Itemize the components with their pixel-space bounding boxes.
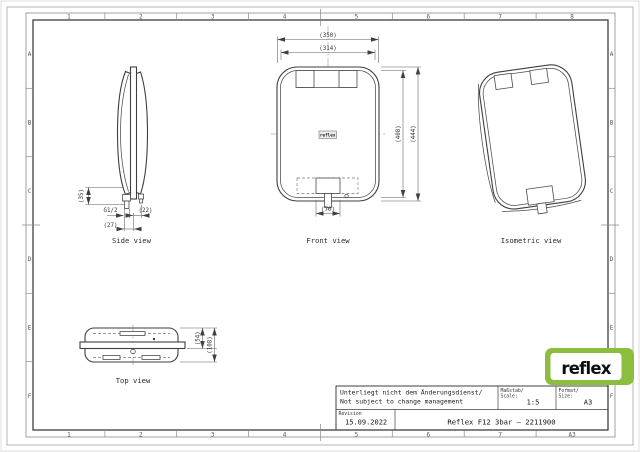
top-slot-lower-right xyxy=(142,356,160,360)
top-valve-dot xyxy=(153,338,155,340)
ruler-top-5: 5 xyxy=(355,14,359,21)
side-view-label: Side view xyxy=(112,236,152,245)
revision-label: Revision xyxy=(339,411,362,417)
ruler-bottom-3: 3 xyxy=(211,432,215,439)
isometric-view-label: Isometric view xyxy=(501,236,562,245)
title-block: Unterliegt nicht dem Änderungsdienst/ No… xyxy=(336,386,608,430)
ruler-left-a: A xyxy=(28,51,32,58)
ruler-bottom-4: 4 xyxy=(283,432,287,439)
iso-bracket-right xyxy=(530,68,549,84)
dim-408: (408) xyxy=(396,125,402,142)
iso-bottom-bracket xyxy=(526,186,554,205)
iso-bracket-left xyxy=(494,73,513,89)
ruler-labels-left: A B C D E F xyxy=(28,51,32,400)
dim-54: (54) xyxy=(196,331,202,345)
ruler-labels-right: A B C D E F xyxy=(610,51,614,400)
dim-350: (350) xyxy=(319,33,336,39)
dim-70: (70) xyxy=(321,207,335,213)
front-bracket-left xyxy=(296,71,314,88)
top-view-label: Top view xyxy=(116,376,151,385)
side-shell-left xyxy=(118,72,131,195)
iso-connection-pipe xyxy=(537,203,547,214)
dim-35: (35) xyxy=(79,189,85,203)
ruler-left-e: E xyxy=(28,325,32,332)
ruler-bottom-6: 6 xyxy=(426,432,430,439)
drawing-canvas: 1 2 3 4 5 6 7 8 1 2 3 4 5 6 7 A3 A B C D… xyxy=(0,0,640,452)
change-note-line2: Not subject to change management xyxy=(340,398,463,406)
dim-444: (444) xyxy=(411,125,417,142)
dim-314: (314) xyxy=(319,46,336,52)
ruler-bottom-7: 7 xyxy=(498,432,502,439)
ruler-right-c: C xyxy=(610,188,614,195)
front-bracket-right xyxy=(339,71,357,88)
scale-value: 1:5 xyxy=(527,399,540,407)
ruler-top-7: 7 xyxy=(498,14,502,21)
dim-22: (22) xyxy=(139,208,153,214)
ruler-right-d: D xyxy=(610,256,614,263)
format-label-de: Format/ xyxy=(559,388,579,394)
isometric-view: Isometric view xyxy=(473,62,589,245)
front-bottom-bracket xyxy=(316,178,340,194)
ruler-top-1: 1 xyxy=(67,14,71,21)
reflex-logo: reflex xyxy=(545,348,634,385)
side-connection-pipe xyxy=(125,201,130,209)
ruler-top-6: 6 xyxy=(426,14,430,21)
dim-108: (108) xyxy=(208,336,214,353)
ruler-top-4: 4 xyxy=(283,14,287,21)
ruler-bottom-8: A3 xyxy=(568,432,576,439)
top-view: (54) (108) Top view xyxy=(80,325,217,385)
front-connection-pipe xyxy=(325,194,332,208)
ruler-right-e: E xyxy=(610,325,614,332)
format-label-en: Size: xyxy=(559,394,573,400)
front-view: reflex (350) (314) (408) (444) (70) xyxy=(271,26,421,245)
ruler-top-3: 3 xyxy=(211,14,215,21)
ruler-left-b: B xyxy=(28,120,32,127)
ruler-bottom-5: 5 xyxy=(355,432,359,439)
side-back-plate xyxy=(131,67,137,199)
drawing-sheet: 1 2 3 4 5 6 7 8 1 2 3 4 5 6 7 A3 A B C D… xyxy=(0,0,640,452)
ruler-right-a: A xyxy=(610,51,614,58)
ruler-top-8: 8 xyxy=(570,14,574,21)
ruler-right-f: F xyxy=(610,393,614,400)
top-mounting-bar xyxy=(80,342,185,349)
ruler-bottom-1: 1 xyxy=(67,432,71,439)
scale-label-en: Scale: xyxy=(501,394,518,400)
side-valve-stub xyxy=(140,199,143,203)
top-slot-lower-left xyxy=(103,356,120,360)
ruler-left-c: C xyxy=(28,188,32,195)
revision-date: 15.09.2022 xyxy=(345,419,387,427)
change-note-line1: Unterliegt nicht dem Änderungsdienst/ xyxy=(340,388,483,397)
ruler-left-d: D xyxy=(28,256,32,263)
reflex-logo-text: reflex xyxy=(561,359,611,378)
dim-g12: G1/2 xyxy=(104,208,118,214)
front-brand-badge-text: reflex xyxy=(320,133,336,139)
ruler-right-b: B xyxy=(610,120,614,127)
side-connection-boss xyxy=(123,195,131,202)
ruler-top-2: 2 xyxy=(139,14,143,21)
top-slot-upper xyxy=(120,332,145,336)
format-value: A3 xyxy=(584,399,592,407)
side-shell-right xyxy=(137,72,148,194)
dim-27: (27) xyxy=(104,223,118,229)
top-view-dimensions: (54) (108) xyxy=(180,328,217,362)
side-valve-boss xyxy=(139,194,144,199)
part-title: Reflex F12 3bar – 2211900 xyxy=(447,418,555,427)
ruler-bottom-2: 2 xyxy=(139,432,143,439)
scale-label-de: Maßstab/ xyxy=(501,388,524,394)
front-view-label: Front view xyxy=(306,236,350,245)
side-view: (35) G1/2 (22) (27) Side view xyxy=(79,67,152,245)
ruler-labels-bottom: 1 2 3 4 5 6 7 A3 xyxy=(67,432,576,439)
ruler-left-f: F xyxy=(28,393,32,400)
